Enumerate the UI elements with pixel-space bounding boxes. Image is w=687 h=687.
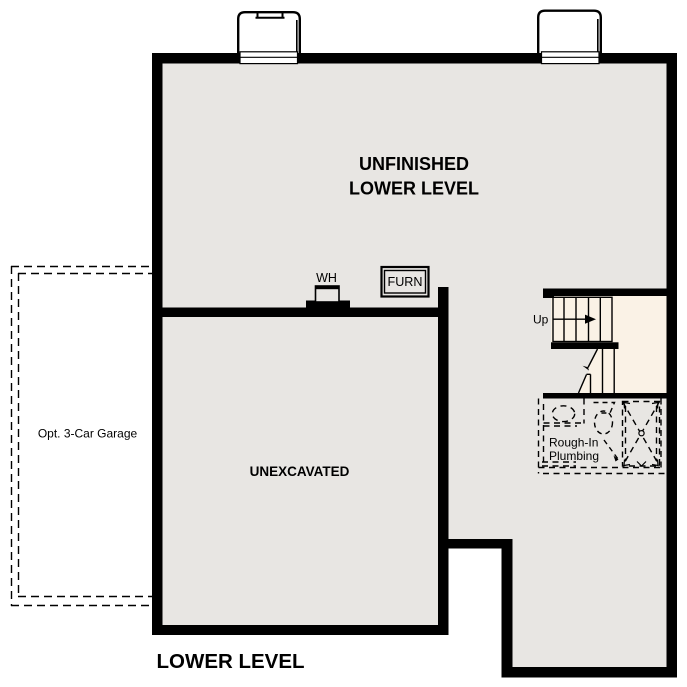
svg-text:UNFINISHED: UNFINISHED [359, 154, 469, 174]
svg-text:UNEXCAVATED: UNEXCAVATED [250, 464, 350, 479]
svg-text:LOWER LEVEL: LOWER LEVEL [157, 650, 305, 673]
svg-text:WH: WH [316, 271, 337, 285]
svg-text:FURN: FURN [388, 275, 423, 289]
svg-text:Up: Up [533, 313, 549, 327]
svg-text:Opt. 3-Car Garage: Opt. 3-Car Garage [38, 427, 138, 441]
svg-text:Rough-In: Rough-In [549, 436, 598, 450]
svg-text:Plumbing: Plumbing [549, 449, 599, 463]
svg-text:LOWER LEVEL: LOWER LEVEL [349, 179, 479, 199]
